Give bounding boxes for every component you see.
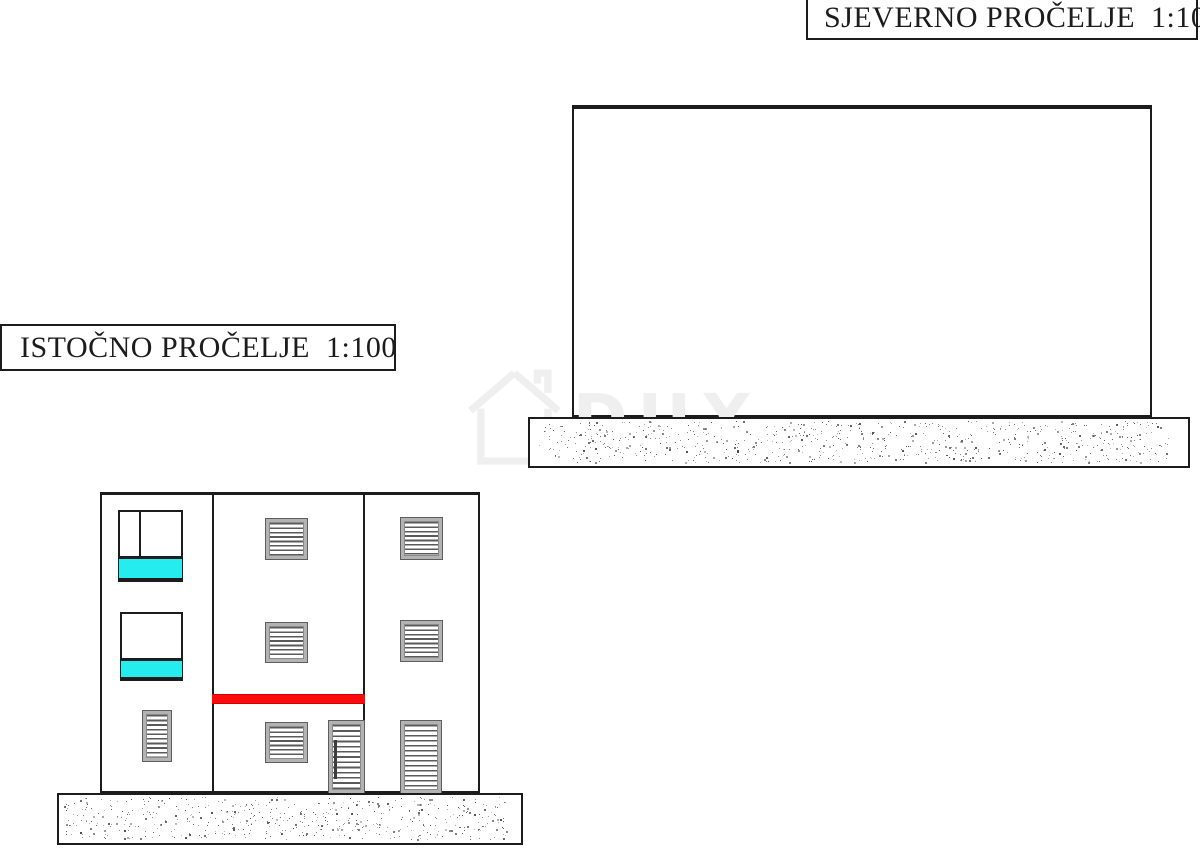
louver-slats — [404, 521, 439, 556]
east-facade-title: ISTOČNO PROČELJE 1:100 — [20, 331, 397, 365]
north-facade-title: SJEVERNO PROČELJE 1:100 — [824, 1, 1200, 35]
louver-slats — [404, 624, 439, 658]
door-handle — [334, 740, 337, 779]
north-facade-foundation — [528, 417, 1190, 468]
louver-slats — [146, 714, 168, 758]
louver-window-mid-middle — [265, 622, 308, 663]
north-facade-title-box: SJEVERNO PROČELJE 1:100 — [806, 0, 1198, 40]
entrance-door — [328, 720, 365, 794]
east-facade-foundation — [57, 793, 523, 845]
louver-door-bottom-right — [400, 720, 442, 794]
louver-slats — [269, 522, 304, 556]
louver-slats — [269, 626, 304, 659]
red-balcony-band — [212, 694, 365, 704]
window-mid-left — [120, 612, 183, 660]
window-top-left — [118, 510, 183, 558]
window-sill-mid-left — [120, 660, 183, 681]
louver-window-top-right — [400, 517, 443, 560]
window-pane-divider — [139, 512, 141, 556]
louver-window-mid-right — [400, 620, 443, 662]
east-facade-title-box: ISTOČNO PROČELJE 1:100 — [0, 324, 396, 371]
louver-slats — [269, 726, 304, 759]
louver-window-bottom-middle — [265, 722, 308, 763]
louver-window-top-middle — [265, 518, 308, 560]
east-facade-building — [100, 492, 480, 793]
drawing-canvas: DUX SJEVERNO PROČELJE 1:100 ISTOČNO PROČ… — [0, 0, 1200, 848]
window-sill-top-left — [118, 558, 183, 582]
louver-slats — [404, 724, 438, 790]
bay-divider-left — [212, 495, 214, 791]
louver-window-bottom-left — [142, 710, 172, 762]
